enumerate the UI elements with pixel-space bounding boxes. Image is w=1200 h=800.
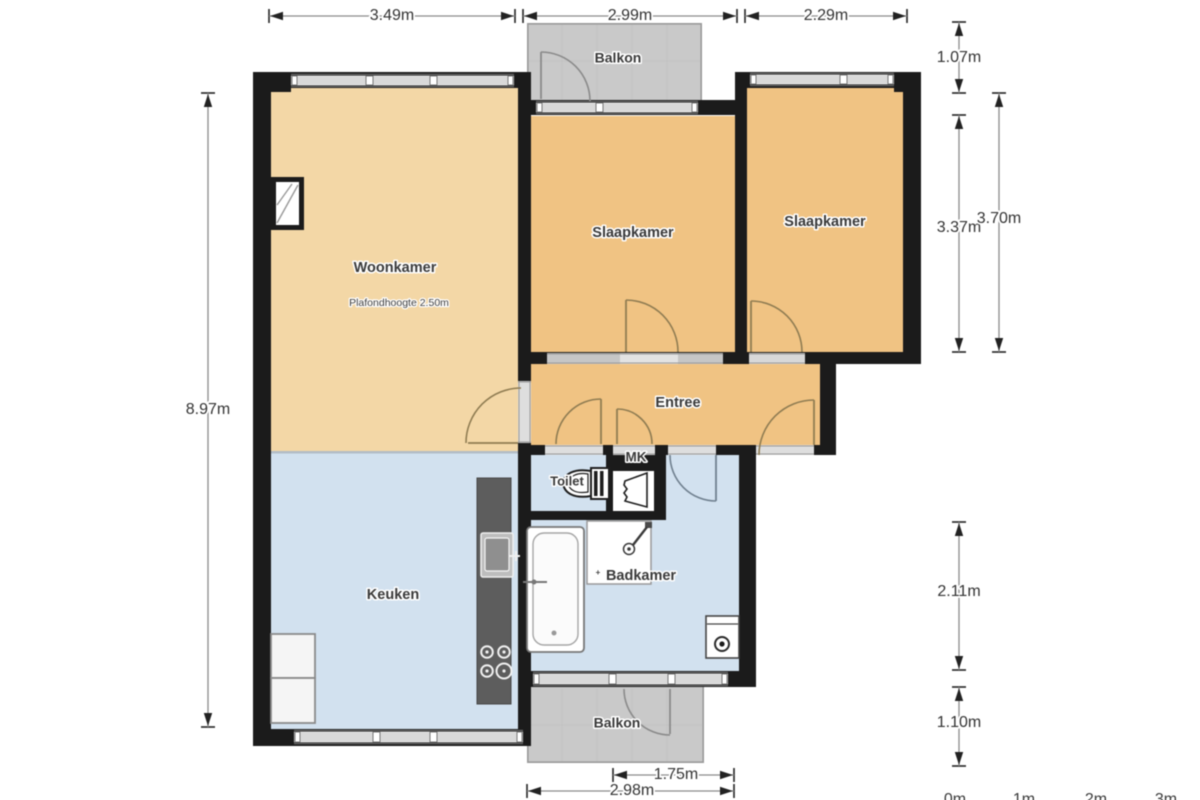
svg-text:3m: 3m <box>1155 791 1177 800</box>
svg-text:1m: 1m <box>1013 791 1035 800</box>
svg-text:1.10m: 1.10m <box>937 714 981 731</box>
svg-text:+: + <box>596 568 601 577</box>
svg-text:MK: MK <box>626 450 647 465</box>
svg-text:Plafondhoogte 2.50m: Plafondhoogte 2.50m <box>349 297 449 309</box>
svg-text:Balkon: Balkon <box>594 715 641 731</box>
svg-text:2.99m: 2.99m <box>608 7 652 24</box>
svg-text:3.70m: 3.70m <box>977 210 1021 227</box>
svg-text:Keuken: Keuken <box>367 587 419 603</box>
svg-text:Woonkamer: Woonkamer <box>354 260 437 276</box>
svg-text:Slaapkamer: Slaapkamer <box>784 214 866 230</box>
svg-text:2.29m: 2.29m <box>804 7 848 24</box>
svg-text:2m: 2m <box>1085 791 1107 800</box>
svg-text:0m: 0m <box>944 791 966 800</box>
svg-text:Toilet: Toilet <box>550 473 584 488</box>
svg-text:3.49m: 3.49m <box>370 7 414 24</box>
svg-text:1.07m: 1.07m <box>937 49 981 66</box>
svg-text:2.98m: 2.98m <box>610 782 654 799</box>
svg-text:Entree: Entree <box>655 395 700 411</box>
svg-text:Badkamer: Badkamer <box>606 568 676 584</box>
svg-text:Slaapkamer: Slaapkamer <box>592 225 674 241</box>
svg-text:8.97m: 8.97m <box>186 401 230 418</box>
svg-text:3.37m: 3.37m <box>937 219 981 236</box>
svg-text:2.11m: 2.11m <box>937 583 980 600</box>
svg-text:1.75m: 1.75m <box>654 766 698 783</box>
svg-text:Balkon: Balkon <box>595 50 642 66</box>
